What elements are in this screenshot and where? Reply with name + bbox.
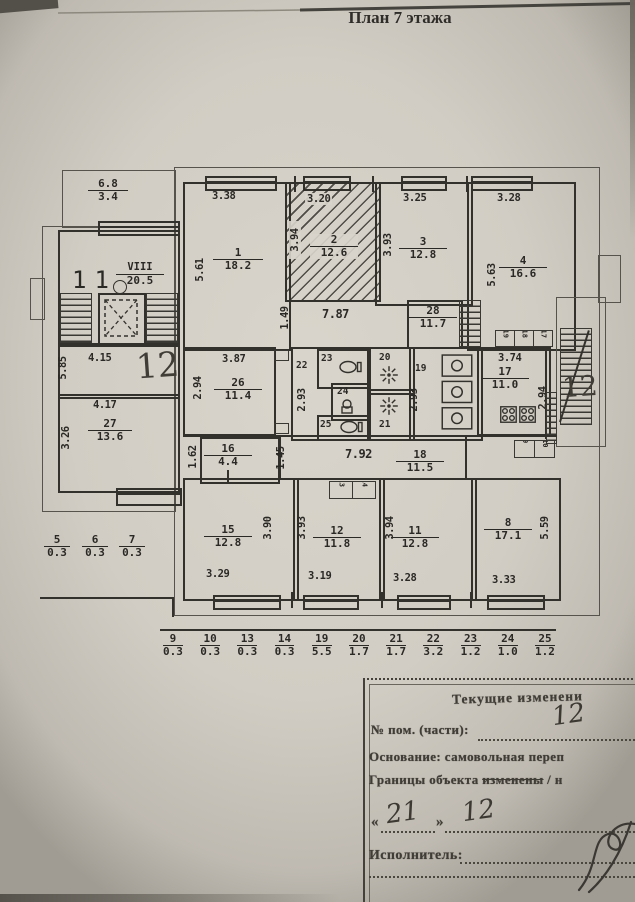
legend-item: 140.3: [275, 633, 295, 658]
corridor-top-width: 1.49: [279, 301, 291, 335]
window-room15: [213, 595, 281, 610]
legend-rule: [160, 629, 556, 631]
legend-item: 90.3: [163, 633, 183, 658]
date-quote-close: »: [436, 814, 444, 831]
room-19-height: 2.93: [408, 383, 420, 417]
room-26-width: 3.87: [222, 353, 245, 365]
balcony-27-rail: [116, 488, 182, 506]
shaft-hatch: [459, 300, 481, 347]
legend-item: 251.2: [535, 633, 555, 658]
room-15-height: 3.90: [262, 511, 274, 545]
toilet-icon: [338, 360, 362, 374]
corridor-bottom-length: 7.92: [345, 447, 372, 461]
shower-icon: [378, 395, 400, 417]
date-day-line: [381, 812, 435, 833]
room-3-width: 3.25: [403, 192, 426, 204]
sink-row-icon: [441, 354, 473, 432]
room-24-label: 24: [337, 386, 348, 397]
page-title: План 7 этажа: [300, 8, 500, 28]
wall-corr-b: [465, 437, 467, 480]
window-room8: [487, 595, 545, 610]
outline-step-v: [172, 597, 174, 617]
room-11-width: 3.28: [393, 572, 416, 584]
room-18-label: 18 11.5: [396, 449, 444, 474]
form-borders: Границы объекта изменены / н: [369, 772, 563, 788]
sink-icon: [340, 399, 354, 414]
closet-13: 13: [329, 481, 353, 499]
room-27-width: 4.17: [93, 399, 116, 411]
room-2-height: 3.94: [289, 221, 301, 259]
room-16-height: 1.62: [187, 440, 199, 474]
room-26-height: 2.94: [192, 371, 204, 405]
room-4-label: 4 16.6: [499, 255, 547, 280]
room-15-width: 3.29: [206, 568, 229, 580]
room-8-label: 8 17.1: [484, 517, 532, 542]
window-room12: [303, 595, 359, 610]
room-12-height: 3.93: [296, 511, 308, 545]
room-21-label: 21: [379, 419, 390, 430]
closet-14: 14: [352, 481, 376, 499]
closet-10: 10: [534, 440, 555, 458]
elevator-icon: [104, 299, 138, 337]
room-1-label: 1 18.2: [213, 247, 263, 272]
legend-item: 100.3: [200, 633, 220, 658]
room-27: [58, 394, 180, 493]
legend-item: 130.3: [237, 633, 257, 658]
legend-item: 201.7: [349, 633, 369, 658]
form-room-label: № пом. (части):: [371, 722, 469, 738]
room-4-height: 5.63: [486, 258, 498, 292]
room-22-label: 22: [296, 360, 307, 371]
wall-tick: [291, 592, 293, 608]
outline-step-h: [40, 597, 173, 599]
room-1-height: 5.61: [194, 253, 206, 287]
room-8-width: 3.33: [492, 574, 515, 586]
room-19-label: 19: [415, 363, 426, 374]
window-room11: [397, 595, 451, 610]
form-room-value: 12: [550, 698, 587, 732]
wall-tick: [381, 592, 383, 608]
wall-tick: [372, 176, 374, 192]
legend-row: 90.3 100.3 130.3 140.3 195.5 201.7 211.7…: [163, 633, 555, 658]
balcony-5-label: 5 0.3: [44, 534, 70, 559]
apartment-11-mark: 11: [72, 266, 117, 294]
room-16-label: 16 4.4: [204, 443, 252, 468]
date-quote-open: «: [371, 814, 379, 831]
room-15-label: 15 12.8: [204, 524, 252, 549]
vent-shaft-bottom: [274, 423, 289, 434]
left-wall-niche: [30, 278, 45, 320]
balcony-6-label: 6 0.3: [82, 534, 108, 559]
legend-item: 223.2: [423, 633, 443, 658]
vent-shaft-top: [274, 350, 289, 361]
toilet-icon: [339, 420, 363, 434]
stove-icon: [500, 406, 536, 423]
room-8-height: 5.59: [539, 511, 551, 545]
scanned-floor-plan-photo: План 7 этажа 6.8 3.4 11 VIII 20.5 4.15 5…: [0, 0, 635, 902]
room-22-height: 2.93: [296, 383, 308, 417]
room-3-height: 3.93: [382, 228, 394, 262]
stairs-left-icon: [60, 293, 92, 343]
premise-12-mark-escape: 12: [561, 369, 599, 404]
balcony-7-label: 7 0.3: [119, 534, 145, 559]
stairs-right-icon: [146, 293, 178, 343]
legend-item: 211.7: [386, 633, 406, 658]
photo-right-shadow: [630, 0, 635, 240]
right-wall-niche: [598, 255, 621, 303]
legend-item: 195.5: [312, 633, 332, 658]
room-2-label: 2 12.6: [310, 234, 358, 259]
closet-19: 19: [495, 330, 515, 347]
room-2-width: 3.20: [305, 193, 332, 205]
balcony-top-label: 6.8 3.4: [88, 178, 128, 203]
room-27-height: 3.26: [60, 421, 72, 455]
closet-9: 9: [514, 440, 535, 458]
room-27-label: 27 13.6: [88, 418, 132, 443]
wall-tick: [466, 176, 468, 192]
room-23-label: 23: [321, 353, 332, 364]
premise-12-mark-stairwell: 12: [135, 345, 181, 388]
wall-tick: [294, 176, 296, 192]
room-3-label: 3 12.8: [399, 236, 447, 261]
photo-bottom-shadow: [0, 894, 340, 902]
closet-17: 17: [533, 330, 553, 347]
room-28-label: 28 11.7: [409, 305, 457, 330]
room-25-label: 25: [320, 419, 331, 430]
room-4-width: 3.28: [497, 192, 520, 204]
legend-item: 241.0: [498, 633, 518, 658]
room-17-width: 3.74: [498, 352, 521, 364]
room-1-width: 3.38: [212, 190, 235, 202]
room-11-label: 11 12.8: [391, 525, 439, 550]
room-20-label: 20: [379, 352, 390, 363]
corridor-top-length: 7.87: [322, 307, 349, 321]
vestibule-width: 4.15: [88, 352, 111, 364]
room-26-label: 26 11.4: [214, 377, 262, 402]
wall-tick: [470, 592, 472, 608]
shower-icon: [378, 364, 400, 386]
room-17-label: 17 11.0: [481, 366, 529, 391]
form-basis: Основание: самовольная переп: [369, 749, 564, 765]
room-12-label: 12 11.8: [313, 525, 361, 550]
corridor-bottom-width: 1.45: [275, 441, 287, 475]
signature-icon: [565, 820, 635, 895]
legend-item: 231.2: [461, 633, 481, 658]
door-swing-icon: [113, 280, 127, 294]
vestibule-height: 5.85: [57, 351, 69, 385]
closet-18: 18: [514, 330, 534, 347]
room-12-width: 3.19: [308, 570, 331, 582]
